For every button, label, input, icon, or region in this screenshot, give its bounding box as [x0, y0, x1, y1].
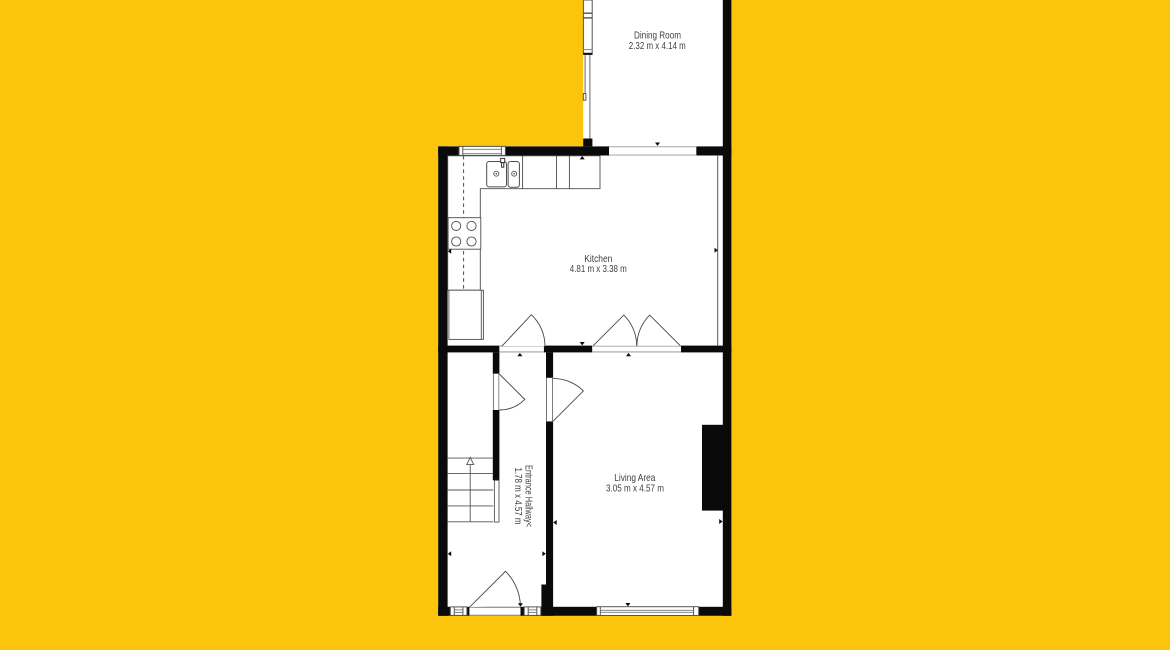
svg-text:Dining Room: Dining Room [634, 30, 681, 41]
svg-text:Living Area: Living Area [614, 473, 655, 484]
svg-text:4.81 m x 3.38 m: 4.81 m x 3.38 m [570, 264, 627, 275]
svg-text:1.78 m x 4.57 m: 1.78 m x 4.57 m [512, 468, 523, 525]
svg-text:3.05 m x 4.57 m: 3.05 m x 4.57 m [606, 484, 664, 495]
svg-text:2.32 m x 4.14 m: 2.32 m x 4.14 m [629, 41, 686, 52]
